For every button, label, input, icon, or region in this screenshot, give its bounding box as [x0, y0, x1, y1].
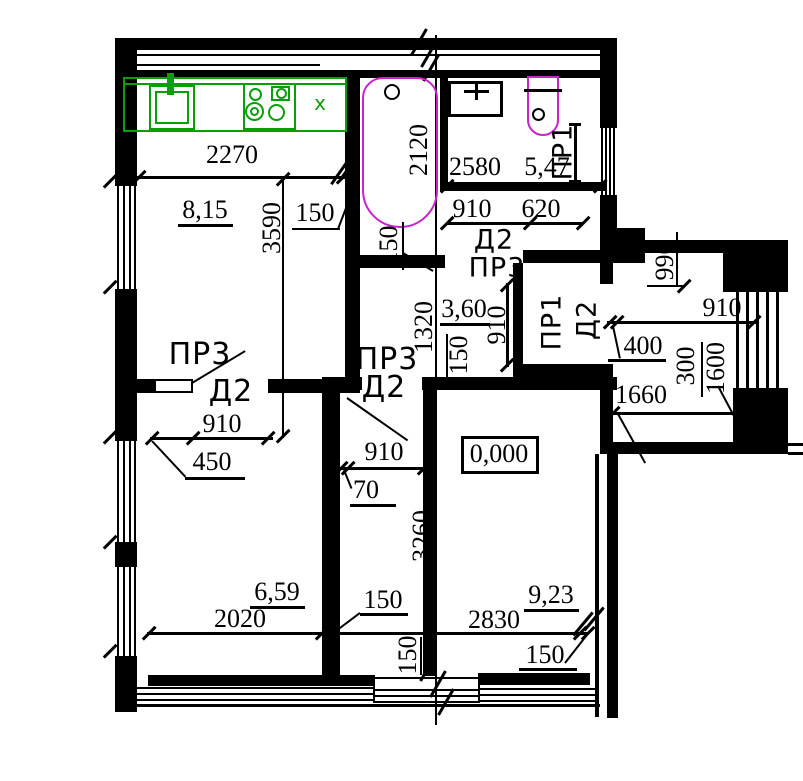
wall-room-left-south	[148, 675, 375, 686]
window-pr1-pane	[605, 127, 607, 195]
window-left-1-pane	[129, 185, 131, 289]
window-bottom-left-pane	[125, 687, 375, 689]
balcony-door-sill	[373, 695, 480, 697]
dim-2270: 2270	[206, 142, 258, 168]
dim-2830: 2830	[468, 607, 520, 633]
area-room-right: 9,23	[528, 582, 574, 608]
window-left-2-pane	[117, 440, 119, 542]
window-left-3-pane	[134, 566, 136, 656]
wall-room-right-south	[478, 673, 590, 685]
dim-910-center: 910	[365, 439, 404, 465]
wall-top-outer	[115, 38, 617, 50]
dim-990: 990	[652, 242, 678, 281]
dim-150-left: 150	[364, 587, 403, 613]
dim-450: 450	[193, 449, 232, 475]
balcony-door-sill	[373, 689, 480, 691]
wall-annex-stub-line	[788, 443, 803, 446]
wall-annex-east-top	[723, 240, 788, 292]
window-bottom-right-pane	[480, 694, 598, 696]
label-d2-hall: Д2	[474, 227, 514, 254]
underline-9-23	[524, 609, 579, 612]
wall-bottom-outer	[115, 704, 600, 707]
dim-150-bath: 150	[376, 226, 402, 265]
kitchen-x-marker: x	[314, 93, 326, 113]
wall-kitchen-bath	[345, 70, 360, 380]
stove-burner	[268, 104, 285, 121]
label-pr1-closet: ПР1	[539, 294, 566, 351]
window-bottom-right-pane	[480, 700, 598, 702]
window-annex-pane	[776, 292, 779, 389]
dim-line-bottom	[147, 632, 587, 635]
window-bottom-left-pane	[125, 699, 375, 701]
window-left-1-pane	[123, 185, 125, 289]
dim-1600: 1600	[703, 342, 729, 394]
window-annex-pane	[746, 292, 749, 389]
wall-annex-stub-line	[788, 452, 803, 455]
dim-150-right: 150	[526, 642, 565, 668]
dim-70: 70	[353, 477, 379, 503]
dim-2580: 2580	[449, 154, 501, 180]
area-room-left: 6,59	[254, 579, 300, 605]
stove-burner	[249, 88, 262, 101]
dim-910-left: 910	[203, 411, 242, 437]
kitchen-sink-inner	[155, 91, 189, 124]
window-annex-cap	[733, 388, 788, 391]
label-pr3-hall: ПР3	[469, 255, 526, 282]
dim-150-hallway: 150	[446, 336, 472, 375]
kitchen-faucet	[167, 73, 174, 95]
dim-910-entry: 910	[703, 295, 742, 321]
dim-620: 620	[522, 196, 561, 222]
dim-400: 400	[624, 333, 663, 359]
dim-2020: 2020	[214, 606, 266, 632]
leader-1660	[617, 414, 646, 464]
wall-kitchen-south-a	[137, 379, 154, 393]
washbasin-line	[524, 89, 562, 92]
dim-2120: 2120	[406, 124, 432, 176]
dim-line-kitchen	[137, 176, 345, 179]
label-pr3-left: ПР3	[169, 340, 232, 370]
dim-150-balcony: 150	[395, 636, 421, 675]
window-pr1-cap	[600, 195, 617, 198]
dim-910-closet: 910	[484, 306, 510, 345]
wall-annex-notch	[603, 228, 645, 263]
dim-3260: 3260	[409, 510, 435, 562]
window-left-3-pane	[123, 566, 125, 656]
bathtub-drain	[384, 84, 400, 100]
label-d2-closet: Д2	[574, 300, 601, 340]
wall-hall-south	[422, 377, 617, 390]
dim-1660: 1660	[615, 382, 667, 408]
dim-910-hall: 910	[453, 196, 492, 222]
window-left-2-pane	[134, 440, 136, 542]
area-hallway: 3,60	[441, 296, 487, 322]
window-annex-pane	[766, 292, 769, 389]
window-left-3-pane	[117, 566, 119, 656]
wall-kitchen-top-line	[125, 64, 320, 66]
wall-closet-east-stub	[600, 366, 613, 377]
balcony-door-sill	[373, 701, 480, 703]
dim-150-top: 150	[296, 200, 335, 226]
cistern-cross	[475, 83, 478, 100]
wall-bath-bottom	[440, 182, 605, 191]
label-pr1-window: ПР1	[550, 124, 577, 181]
window-left-2-pane	[123, 440, 125, 542]
label-d2-left: Д2	[209, 377, 254, 407]
window-annex-cap	[733, 289, 788, 292]
window-pr1-pane	[613, 127, 615, 195]
wall-top-line	[119, 54, 613, 56]
wall-room-right-east	[607, 454, 618, 718]
wall-hall-south-corner	[322, 377, 362, 390]
window-bottom-right-pane	[480, 688, 598, 690]
window-annex-pane	[756, 292, 759, 389]
leader-70	[343, 470, 352, 489]
washbasin-drain	[532, 108, 545, 121]
window-left-1-pane	[117, 185, 119, 289]
window-left-2-cap	[115, 542, 137, 545]
floor-plan: x	[0, 0, 803, 781]
dim-line-990	[647, 285, 685, 287]
wall-room-right-east-inner	[595, 454, 599, 717]
balcony-door-jamb	[373, 675, 375, 703]
underline-8-15	[178, 224, 233, 227]
underline-150-top	[292, 228, 340, 230]
stove-burner	[250, 107, 259, 116]
level-mark: 0,000	[470, 441, 529, 467]
window-left-1-cap	[115, 289, 137, 292]
window-left-2-pane	[129, 440, 131, 542]
window-left-3-cap	[115, 656, 137, 659]
dim-line-910-center	[338, 467, 428, 470]
label-d2-center: Д2	[362, 373, 407, 403]
window-bottom-left-pane	[125, 693, 375, 695]
underline-450	[185, 477, 245, 480]
window-left-3-pane	[129, 566, 131, 656]
window-pr1-pane	[609, 127, 611, 195]
dim-3590: 3590	[259, 202, 285, 254]
leader-450	[151, 440, 186, 477]
underline-70	[350, 504, 396, 507]
area-kitchen: 8,15	[182, 197, 228, 223]
wall-bath-divider	[440, 70, 448, 186]
leader-400	[612, 326, 621, 359]
wall-closet-south	[513, 364, 613, 377]
window-left-1-pane	[134, 185, 136, 289]
stove-burner	[276, 88, 287, 99]
dim-300: 300	[673, 347, 699, 386]
wall-kitchen-south-pier	[154, 379, 193, 393]
